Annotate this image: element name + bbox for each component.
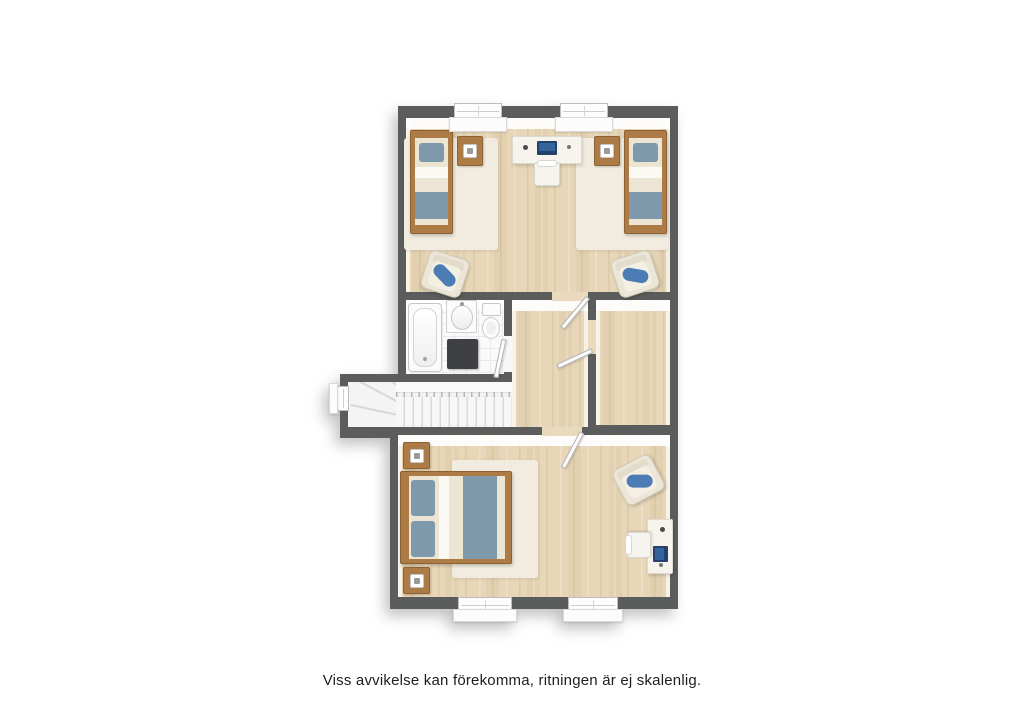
nightstand-top-right — [594, 136, 620, 166]
desk-item-bottom — [659, 563, 663, 567]
sink-faucet — [460, 302, 464, 306]
nightstand-master-bottom — [403, 567, 430, 594]
nightstand-top-right-lamp-top — [604, 148, 610, 154]
desk-item-top — [660, 527, 665, 532]
toilet-bowl — [482, 317, 500, 339]
window-top-1-mullion — [478, 106, 479, 116]
nightstand-master-bottom-lamp-top — [414, 578, 420, 584]
stairs-treads — [396, 397, 512, 427]
desk-chair-master-backrest — [625, 535, 632, 555]
double-bed-master — [400, 471, 512, 564]
desk-item-left — [523, 145, 528, 150]
nightstand-top-right-lamp — [600, 144, 614, 158]
disclaimer-text: Viss avvikelse kan förekomma, ritningen … — [0, 672, 1024, 689]
floor-plan — [340, 100, 680, 624]
single-bed-right — [624, 130, 667, 234]
toilet-seat — [486, 321, 496, 335]
room-small-room — [596, 300, 670, 425]
window-bottom-2-mullion — [593, 600, 594, 609]
winder-step-3 — [351, 404, 396, 415]
floorplan-page: Viss avvikelse kan förekomma, ritningen … — [0, 0, 1024, 724]
window-top-1-sill — [449, 117, 507, 132]
nightstand-master-top-lamp-top — [414, 453, 420, 459]
sink-basin — [451, 305, 473, 330]
single-bed-right-sheet-fold — [629, 167, 662, 178]
desk-chair-top-bedroom — [534, 162, 560, 186]
stairs-winder — [348, 382, 396, 427]
desk-item-right — [567, 145, 571, 149]
double-bed-master-sheet-fold — [439, 476, 449, 559]
double-bed-master-blanket — [463, 476, 497, 559]
window-stairs-sill — [329, 383, 338, 414]
window-top-2-sill — [555, 117, 613, 132]
single-bed-left — [410, 130, 453, 234]
room-hallway — [512, 300, 588, 427]
staircase — [348, 382, 512, 427]
laptop-screen — [539, 143, 555, 151]
nightstand-master-top-lamp — [410, 449, 424, 463]
nightstand-top-left — [457, 136, 483, 166]
desk-chair-top-bedroom-backrest — [537, 160, 557, 167]
laptop — [537, 141, 557, 155]
window-top-2-mullion — [584, 106, 585, 116]
single-bed-right-blanket — [629, 192, 662, 219]
toilet-tank — [482, 303, 501, 316]
opening-master-bedroom — [542, 427, 582, 436]
double-bed-master-pillow-2 — [411, 521, 435, 557]
window-bottom-2-sill — [563, 609, 623, 622]
winder-step-2 — [357, 382, 396, 403]
single-bed-right-pillow — [633, 143, 658, 162]
bathtub-drain — [423, 357, 427, 361]
sink — [446, 300, 477, 333]
laptop-screen — [655, 548, 664, 560]
bathtub — [408, 303, 442, 372]
nightstand-master-top — [403, 442, 430, 469]
single-bed-left-sheet-fold — [415, 167, 448, 178]
window-stairs-frame — [343, 389, 344, 408]
single-bed-left-blanket — [415, 192, 448, 219]
window-bottom-1-sill — [453, 609, 517, 622]
desk-chair-master — [627, 532, 651, 558]
window-bottom-1-mullion — [485, 600, 486, 609]
bath-mat — [447, 339, 478, 369]
window-stairs — [337, 386, 349, 411]
laptop — [653, 546, 668, 562]
nightstand-master-bottom-lamp — [410, 574, 424, 588]
toilet — [481, 303, 502, 340]
single-bed-left-pillow — [419, 143, 444, 162]
double-bed-master-pillow-1 — [411, 480, 435, 516]
nightstand-top-left-lamp — [463, 144, 477, 158]
armchair-master-cushion — [626, 475, 652, 488]
nightstand-top-left-lamp-top — [467, 148, 473, 154]
